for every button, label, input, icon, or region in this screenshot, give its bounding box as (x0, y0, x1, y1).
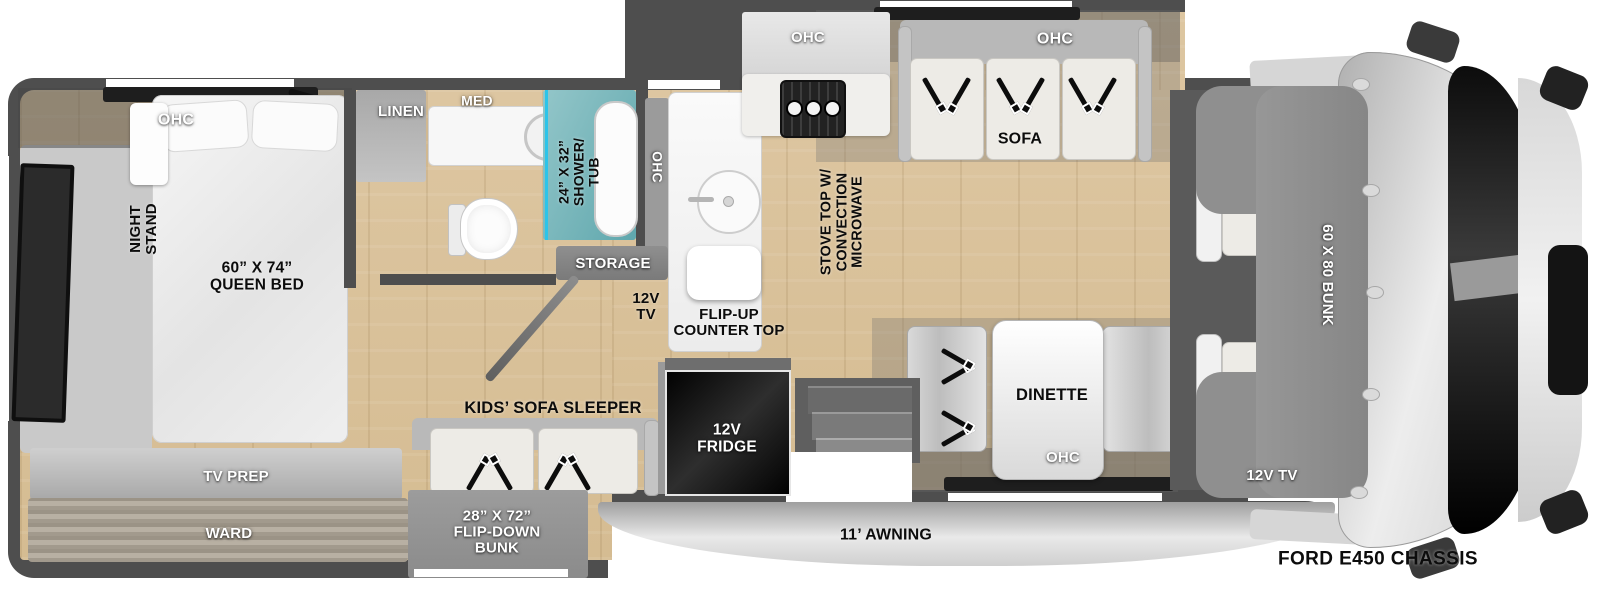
rv-floorplan: OHC NIGHT STAND 60” X 74” QUEEN BED TV P… (0, 0, 1600, 601)
hinge-dot (1362, 184, 1380, 197)
entry-door-opening (786, 452, 912, 504)
seatbelt-icon (938, 410, 974, 446)
galley-top-wall-chunk (625, 0, 745, 90)
flip-down-bunk-window (414, 569, 568, 577)
stove-label: STOVE TOP W/ CONVECTION MICROWAVE (820, 169, 867, 275)
galley-faucet (688, 197, 714, 202)
bedroom-tv (12, 163, 75, 423)
toilet-bowl (460, 198, 518, 260)
stove-burner (786, 100, 803, 117)
stove-burner (824, 100, 841, 117)
galley-tv-label: 12V TV (632, 291, 659, 323)
ward-label: WARD (206, 526, 253, 542)
kids-sofa-label: KIDS’ SOFA SLEEPER (464, 400, 641, 418)
sofa-label: SOFA (998, 130, 1042, 147)
bunk-label: 60 X 80 BUNK (1319, 224, 1335, 326)
bath-top-window (648, 80, 720, 89)
flip-down-bunk-label: 28” X 72” FLIP-DOWN BUNK (454, 509, 541, 558)
hinge-dot (1350, 486, 1368, 499)
dinette-ohc-label: OHC (1046, 450, 1080, 466)
queen-bed-label: 60” X 74” QUEEN BED (210, 260, 304, 293)
entry-step (808, 386, 912, 414)
sofa-arm (1138, 26, 1152, 162)
dinette-bench (1102, 326, 1180, 452)
seatbelt-icon (938, 348, 974, 384)
night-stand-label: NIGHT STAND (128, 203, 160, 255)
awning-label: 11’ AWNING (840, 526, 932, 543)
sofa-slide-topper (874, 7, 1080, 20)
hinge-dot (1352, 78, 1370, 91)
hinge-dot (1366, 286, 1384, 299)
rear-wall-window (0, 156, 9, 421)
entry-step (812, 412, 912, 440)
shower-glass-line (545, 90, 548, 240)
fridge-label: 12V FRIDGE (697, 422, 757, 455)
awning (598, 502, 1335, 566)
bunk-tv-label: 12V TV (1246, 468, 1297, 484)
linen-label: LINEN (378, 104, 424, 120)
galley-drain (723, 196, 734, 207)
storage-label: STORAGE (575, 256, 650, 272)
med-label: MED (461, 93, 493, 108)
chassis-label: FORD E450 CHASSIS (1278, 550, 1478, 571)
tv-prep-label: TV PREP (203, 469, 269, 485)
flip-up-counter (687, 246, 761, 300)
stove-burner (805, 100, 822, 117)
front-grille (1548, 245, 1588, 395)
dinette-label: DINETTE (1016, 387, 1088, 405)
dinette-slide-window (948, 493, 1162, 501)
hinge-dot (1362, 388, 1380, 401)
sofa-ohc-label: OHC (1037, 30, 1073, 47)
bedroom-ohc-label: OHC (158, 111, 194, 128)
galley-ohc-top-label: OHC (791, 30, 825, 46)
bath-bottom-wall (380, 274, 556, 285)
galley-ohc-side-label: OHC (649, 151, 664, 183)
shower-tub-label: 24” X 32” SHOWER/ TUB (556, 138, 601, 206)
bed-pillow (251, 100, 339, 152)
flip-up-counter-label: FLIP-UP COUNTER TOP (673, 307, 784, 339)
bath-left-wall (344, 90, 356, 288)
cabover-bunk (1256, 86, 1368, 498)
